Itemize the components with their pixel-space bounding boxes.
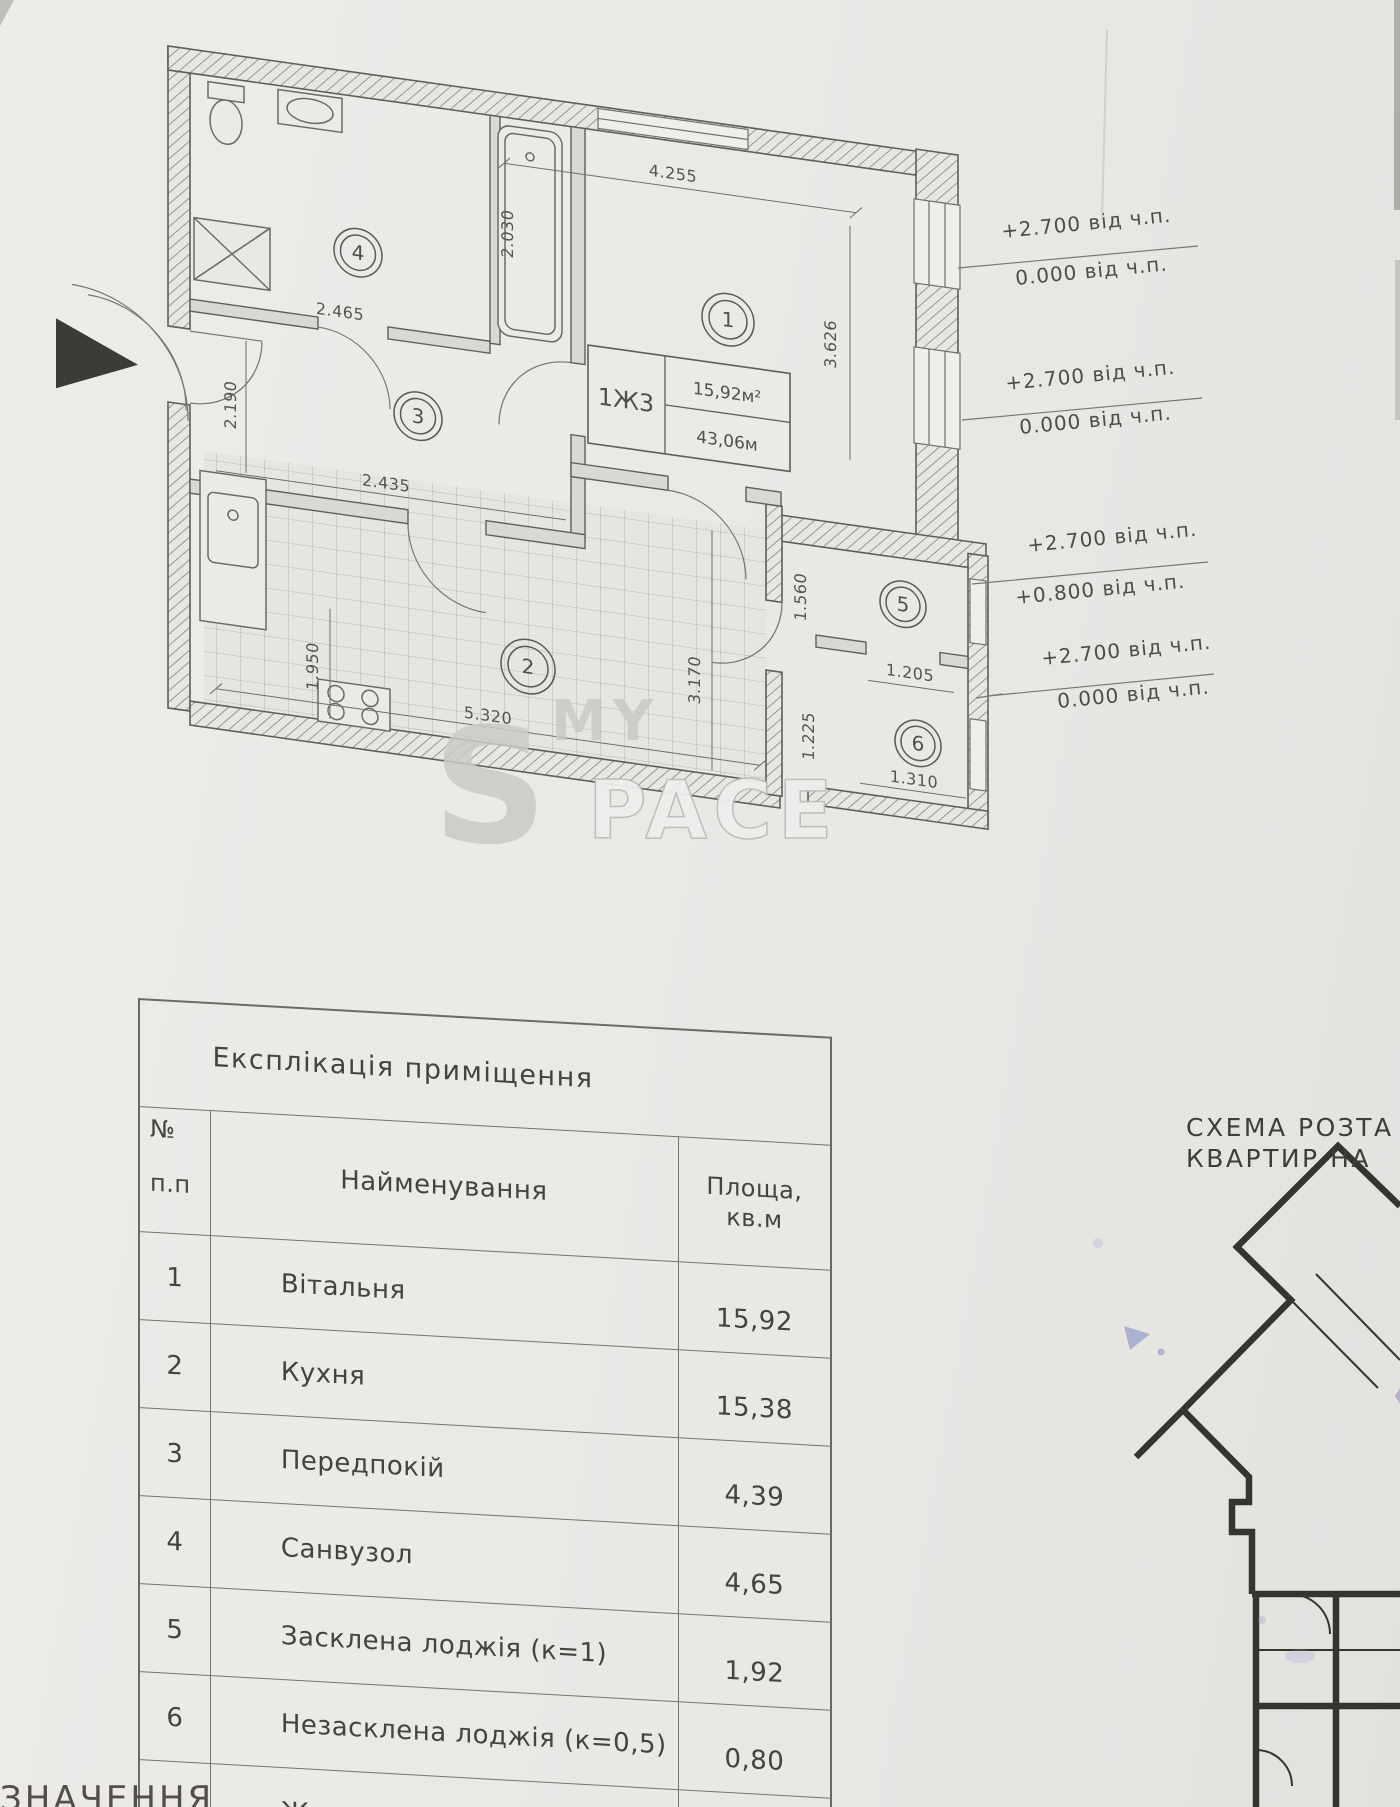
cell-area: 1,92 <box>678 1614 831 1711</box>
column-header-area: Площа, кв.м <box>678 1137 831 1271</box>
dim-kitchen-left: 1.950 <box>303 641 322 692</box>
schema-title-line1: СХЕМА РОЗТА <box>1186 1112 1394 1143</box>
cell-area: 0,80 <box>678 1702 831 1799</box>
room-number-5: 5 <box>897 591 910 617</box>
entry-arrow-icon <box>56 318 138 400</box>
cell-number: 1 <box>139 1232 210 1324</box>
dim-lodge5-height: 1.560 <box>791 571 810 622</box>
room-number-4: 4 <box>352 240 365 266</box>
watermark-my: MY <box>551 689 659 754</box>
explication-table: Експлікація приміщення № п.п Найменуванн… <box>138 998 832 1807</box>
apartment-label-box: 1Ж3 15,92м² 43,06м <box>588 345 790 471</box>
cell-number: 3 <box>139 1408 210 1500</box>
dim-tub-length: 2.030 <box>498 208 517 259</box>
room-number-1: 1 <box>722 307 735 333</box>
cell-number: 4 <box>139 1496 210 1588</box>
cell-number: 2 <box>139 1320 210 1412</box>
dim-bath-width: 2.465 <box>316 299 364 325</box>
elevation-note: +0.800 від ч.п. <box>1014 569 1186 609</box>
cell-number: 6 <box>139 1672 210 1764</box>
cell-area: 15,38 <box>678 1350 831 1447</box>
footer-partial-text: ЗНАЧЕННЯ <box>0 1779 214 1807</box>
schema-title: СХЕМА РОЗТА КВАРТИР НА <box>1186 1112 1394 1174</box>
elevation-note: +2.700 від ч.п. <box>1040 630 1212 670</box>
building-schema <box>1093 1146 1400 1807</box>
dim-room1-height: 3.626 <box>821 319 840 370</box>
elevation-note: +2.700 від ч.п. <box>1004 355 1176 395</box>
room-number-3: 3 <box>412 403 425 429</box>
elevation-notes: +2.700 від ч.п. 0.000 від ч.п. +2.700 ві… <box>1000 203 1212 713</box>
col-no-line2: п.п <box>150 1169 209 1200</box>
elevation-note: 0.000 від ч.п. <box>1056 674 1210 713</box>
cell-area: 4,65 <box>678 1526 831 1623</box>
watermark-pace: PACE <box>588 764 839 857</box>
watermark-s: S <box>432 693 547 880</box>
elevation-note: +2.700 від ч.п. <box>1000 203 1172 243</box>
cell-area: 4,39 <box>678 1438 831 1535</box>
elevation-note: 0.000 від ч.п. <box>1018 400 1172 439</box>
cell-number: 5 <box>139 1584 210 1676</box>
dim-kitchen-height: 3.170 <box>685 655 704 706</box>
schema-title-line2: КВАРТИР НА <box>1186 1143 1394 1174</box>
dim-hall-height: 2.190 <box>221 379 240 430</box>
kitchen-sink-icon <box>208 492 258 569</box>
dim-lodge5-width: 1.205 <box>886 660 934 686</box>
scanned-floor-plan-page: 4.255 3.626 2.465 2.030 2.435 2.190 5.32… <box>0 0 1400 1807</box>
dim-lodge6-height: 1.225 <box>799 711 818 762</box>
cell-area: 15,92 <box>678 1262 831 1359</box>
elevation-note: 0.000 від ч.п. <box>1014 251 1168 290</box>
col-no-line1: № <box>150 1115 209 1146</box>
dim-room1-width: 4.255 <box>649 161 697 187</box>
elevation-note: +2.700 від ч.п. <box>1026 517 1198 557</box>
room-number-2: 2 <box>522 654 535 680</box>
room-number-6: 6 <box>912 731 925 757</box>
column-header-number: № п.п <box>139 1107 210 1236</box>
toilet-bowl-icon <box>210 98 242 146</box>
